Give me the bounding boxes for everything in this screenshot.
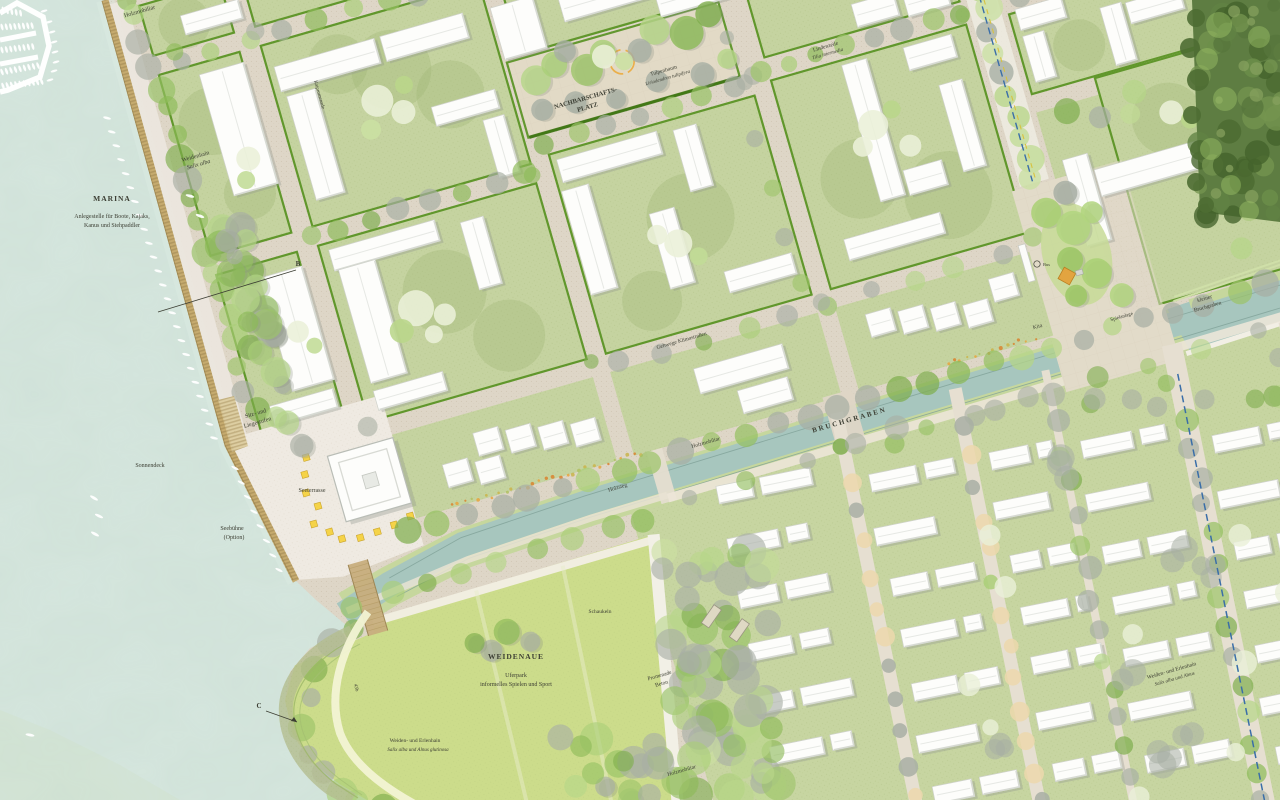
svg-text:Schaukeln: Schaukeln xyxy=(589,609,612,615)
svg-text:Uferpark: Uferpark xyxy=(505,672,527,679)
svg-text:Seebühne: Seebühne xyxy=(220,526,244,532)
svg-text:C: C xyxy=(256,702,261,710)
svg-text:informelles Spielen und Sport: informelles Spielen und Sport xyxy=(480,681,552,688)
svg-text:Salix alba und Alnus glutinosa: Salix alba und Alnus glutinosa xyxy=(387,748,449,753)
svg-text:Weiden- und Erlenhain: Weiden- und Erlenhain xyxy=(390,738,441,744)
svg-text:(Option): (Option) xyxy=(224,534,245,541)
svg-text:Kanus und Stehpaddler: Kanus und Stehpaddler xyxy=(84,223,140,229)
svg-text:Sonnendeck: Sonnendeck xyxy=(135,463,164,469)
svg-text:Bus: Bus xyxy=(1043,262,1050,267)
svg-text:Anlegestelle für Boote, Kajaks: Anlegestelle für Boote, Kajaks, xyxy=(74,213,150,220)
svg-text:MARINA: MARINA xyxy=(93,194,131,203)
svg-text:B: B xyxy=(296,260,301,268)
svg-text:Seeterrasse: Seeterrasse xyxy=(299,488,326,494)
svg-text:WEIDENAUE: WEIDENAUE xyxy=(488,652,544,661)
